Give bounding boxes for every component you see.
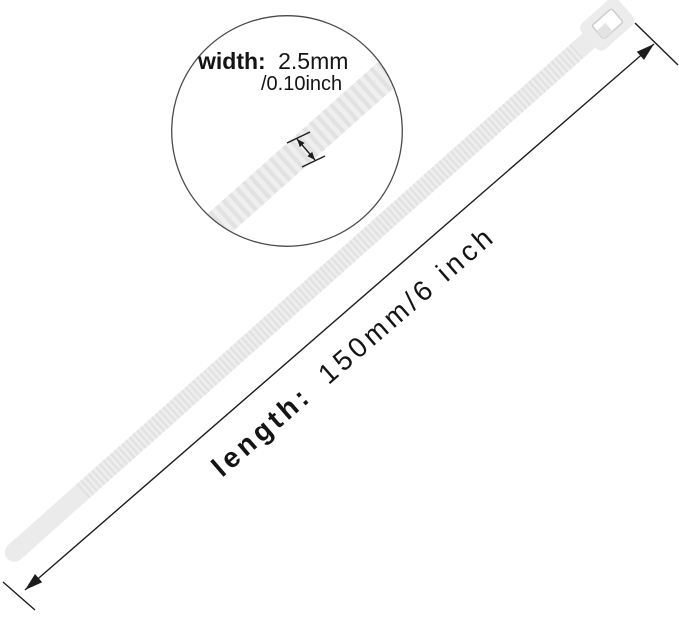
magnifier-callout: width: 2.5mm /0.10inch [130,0,478,306]
magnified-strap [130,0,478,306]
product-dimension-diagram: width: 2.5mm /0.10inch length: 150mm/6 i… [0,0,679,623]
width-label: width: 2.5mm [197,48,348,74]
length-tick-top [635,23,678,65]
width-alt-label: /0.10inch [261,73,342,95]
cable-tie-diagram-canvas: width: 2.5mm /0.10inch length: 150mm/6 i… [0,0,679,623]
